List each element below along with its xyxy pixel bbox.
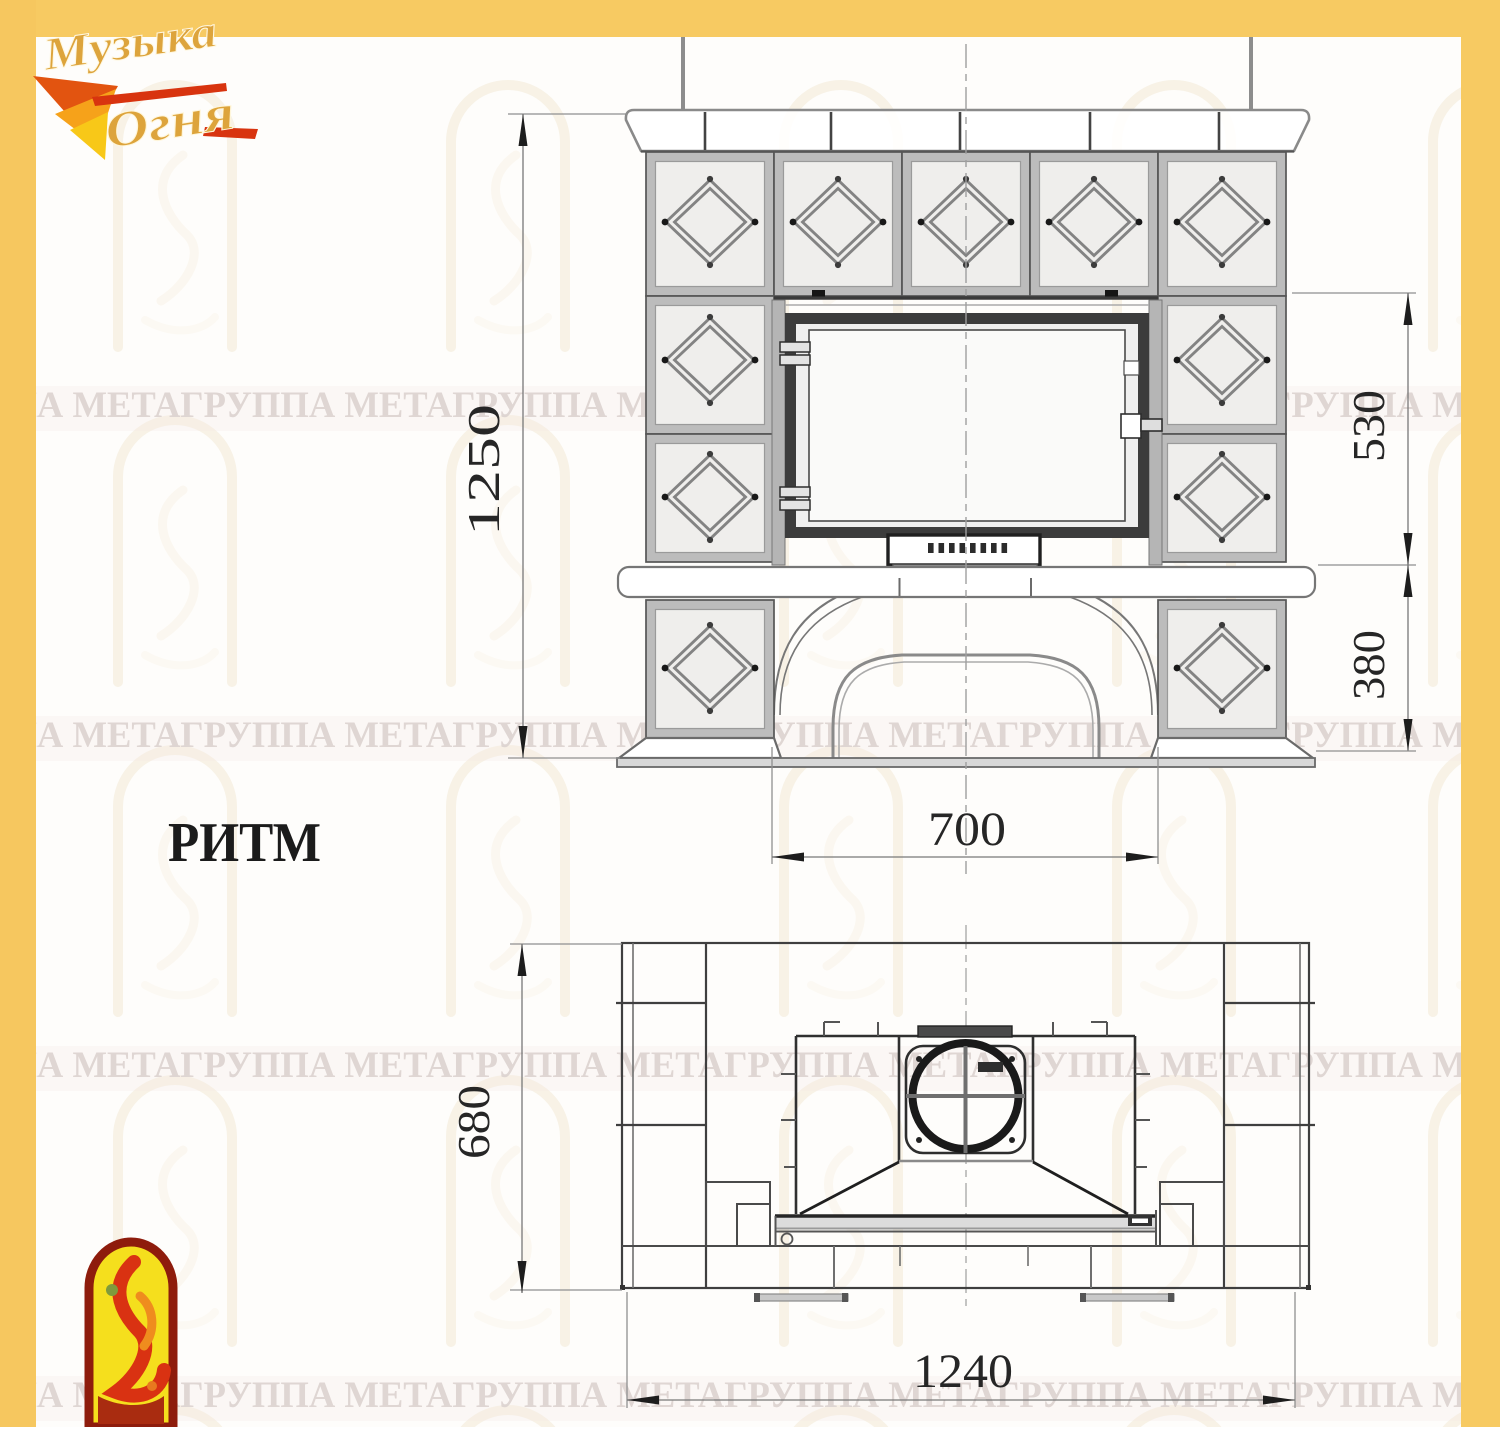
svg-text:1240: 1240 xyxy=(913,1345,1013,1398)
svg-text:680: 680 xyxy=(448,1085,499,1159)
svg-text:ППА МЕТАГРУППА МЕТАГРУППА МЕТА: ППА МЕТАГРУППА МЕТАГРУППА МЕТАГРУППА МЕТ… xyxy=(0,1045,1500,1086)
svg-text:530: 530 xyxy=(1343,390,1394,462)
svg-text:ППА МЕТАГРУППА МЕТАГРУППА МЕТА: ППА МЕТАГРУППА МЕТАГРУППА МЕТАГРУППА МЕТ… xyxy=(0,1375,1500,1416)
svg-text:380: 380 xyxy=(1343,630,1394,700)
svg-text:1250: 1250 xyxy=(458,404,509,536)
svg-text:РИТМ: РИТМ xyxy=(168,812,321,874)
svg-text:700: 700 xyxy=(928,803,1006,856)
